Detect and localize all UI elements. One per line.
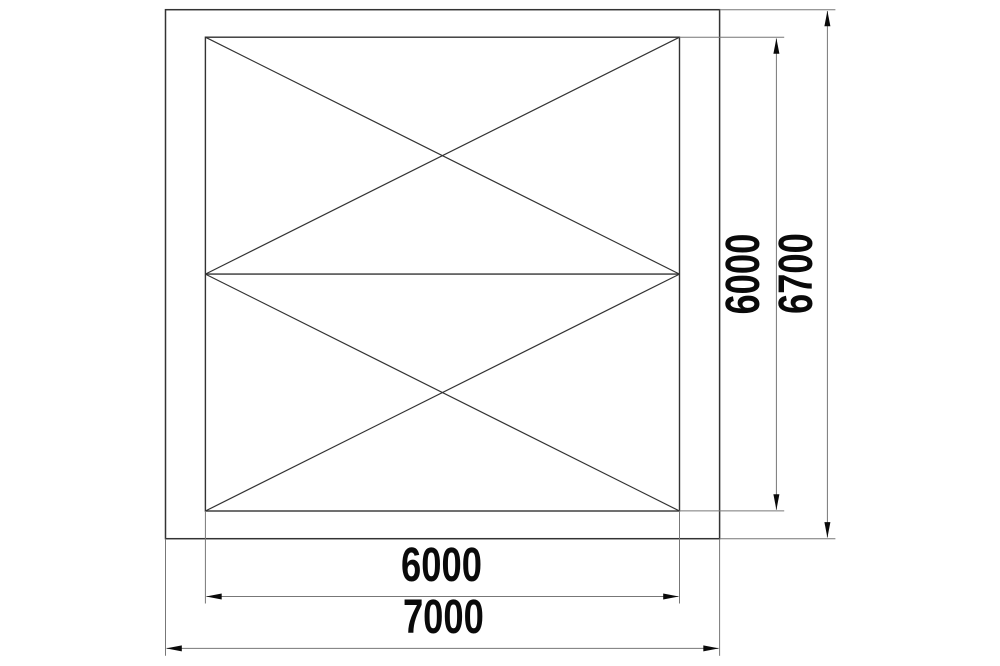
svg-text:6000: 6000 [716,234,770,315]
svg-text:6700: 6700 [769,233,823,314]
svg-text:6000: 6000 [401,538,482,592]
svg-text:7000: 7000 [403,590,484,644]
